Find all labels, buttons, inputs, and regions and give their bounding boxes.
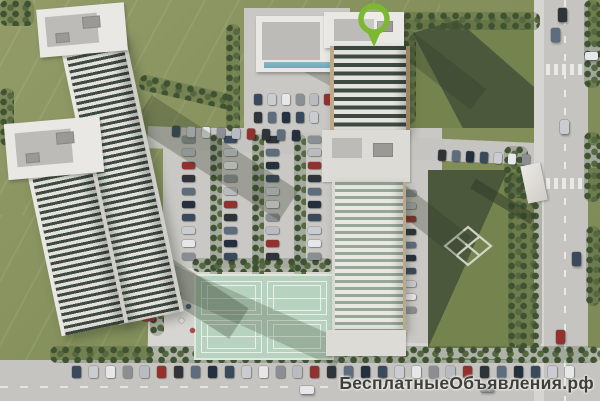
parked-car <box>224 214 237 221</box>
hedge-top <box>392 12 540 30</box>
park-north <box>402 20 534 128</box>
sports-courts <box>194 274 334 360</box>
court-markings <box>207 285 256 311</box>
parked-car <box>182 162 195 169</box>
parked-car <box>266 253 279 260</box>
parked-car <box>182 227 195 234</box>
parked-car <box>268 94 276 105</box>
location-pin-icon <box>352 0 396 50</box>
clubhouse-roof <box>262 22 320 60</box>
car-on-road <box>551 28 560 42</box>
parked-car <box>242 366 251 378</box>
parked-car <box>89 366 98 378</box>
parked-car <box>224 253 237 260</box>
trees-road-east-mid <box>584 132 600 202</box>
parked-car <box>308 201 321 208</box>
watermark-text: БесплатныеОбъявления.рф <box>339 373 594 394</box>
parked-car <box>277 129 285 140</box>
parked-car <box>232 128 240 139</box>
tennis-court-1 <box>201 281 262 315</box>
hedge-west-of-clubhouse <box>226 24 240 132</box>
playground-item <box>190 328 195 333</box>
parked-car <box>266 149 279 156</box>
parking-row-clubhouse-2 <box>254 112 318 123</box>
parked-car <box>225 366 234 378</box>
parked-car <box>308 253 321 260</box>
tower-a-roof <box>36 2 128 57</box>
trees-road-east-top <box>584 0 600 88</box>
parked-car <box>266 214 279 221</box>
parked-car <box>438 150 447 161</box>
rooftop-hvac <box>57 132 74 143</box>
parked-car <box>202 127 210 138</box>
parked-car <box>182 149 195 156</box>
parked-car <box>282 94 290 105</box>
tower-d-entrance <box>326 330 406 356</box>
parked-car <box>224 201 237 208</box>
parked-car <box>452 150 461 161</box>
parked-car <box>310 94 318 105</box>
parked-car <box>182 214 195 221</box>
car-on-road <box>558 8 567 22</box>
parked-car <box>308 227 321 234</box>
parked-car <box>508 153 517 164</box>
parked-car <box>466 151 475 162</box>
tower-c-facade <box>330 46 410 132</box>
car-on-road <box>300 386 314 394</box>
tennis-court-4 <box>267 320 328 354</box>
lap-pool <box>264 62 338 68</box>
parked-car <box>268 112 276 123</box>
park-diamond-paths <box>442 224 494 268</box>
court-markings <box>273 324 322 350</box>
parked-car <box>174 366 183 378</box>
parked-car <box>123 366 132 378</box>
tower-c-annex <box>322 130 410 182</box>
trees-top-left-corner <box>0 0 34 26</box>
rooftop-hvac <box>26 153 39 162</box>
aerial-render-residential-complex: БесплатныеОбъявления.рф <box>0 0 600 401</box>
parked-car <box>308 175 321 182</box>
parked-car <box>296 94 304 105</box>
tennis-court-3 <box>201 320 262 354</box>
rooftop-hvac <box>83 16 100 27</box>
parked-car <box>172 126 180 137</box>
parked-car <box>308 149 321 156</box>
parked-car <box>106 366 115 378</box>
court-markings <box>273 285 322 311</box>
parked-car <box>308 136 321 143</box>
hedge-above-courts <box>192 258 334 272</box>
parked-car <box>224 175 237 182</box>
parked-car <box>224 188 237 195</box>
parked-car <box>266 201 279 208</box>
parked-car <box>266 175 279 182</box>
parked-car <box>266 162 279 169</box>
parked-car <box>182 240 195 247</box>
parking-column-1 <box>182 136 195 260</box>
parking-row-clubhouse-1 <box>254 94 332 105</box>
playground-item <box>186 304 191 309</box>
parked-car <box>224 162 237 169</box>
car-on-road <box>585 52 598 60</box>
parked-car <box>224 149 237 156</box>
playground-item <box>179 318 184 323</box>
parked-car <box>182 188 195 195</box>
parked-car <box>208 366 217 378</box>
trees-road-east-lower <box>586 226 600 306</box>
parked-car <box>296 112 304 123</box>
parking-column-4 <box>308 136 321 260</box>
tower-b-roof <box>4 116 105 180</box>
parked-car <box>157 366 166 378</box>
parked-car <box>282 112 290 123</box>
parked-car <box>308 240 321 247</box>
rooftop-hvac <box>56 33 69 42</box>
parked-car <box>72 366 81 378</box>
tower-d-facade <box>332 182 406 330</box>
parked-car <box>140 366 149 378</box>
parked-car <box>276 366 285 378</box>
parked-car <box>308 214 321 221</box>
parked-car <box>494 153 503 164</box>
parked-car <box>266 188 279 195</box>
crosswalk-north <box>546 64 586 75</box>
parked-car <box>182 253 195 260</box>
parked-car <box>187 126 195 137</box>
parking-column-3 <box>266 136 279 260</box>
court-markings <box>207 324 256 350</box>
annex-roof <box>332 138 362 158</box>
tennis-court-2 <box>267 281 328 315</box>
parking-column-2 <box>224 136 237 260</box>
car-on-road <box>556 330 565 344</box>
rooftop-hvac <box>374 144 392 156</box>
parked-car <box>191 366 200 378</box>
car-on-road <box>560 120 569 134</box>
parked-car <box>310 112 318 123</box>
parked-car <box>308 162 321 169</box>
car-on-road <box>572 252 581 266</box>
parked-car <box>182 201 195 208</box>
parked-car <box>262 129 270 140</box>
parked-car <box>292 130 300 141</box>
parked-car <box>293 366 302 378</box>
parked-car <box>310 366 319 378</box>
parked-car <box>182 175 195 182</box>
parked-car <box>259 366 268 378</box>
parked-car <box>254 112 262 123</box>
parked-car <box>480 152 489 163</box>
parked-car <box>254 94 262 105</box>
tower-shadow-on-park-north <box>402 20 534 128</box>
parked-car <box>266 227 279 234</box>
parked-car <box>224 227 237 234</box>
parked-car <box>327 366 336 378</box>
parked-car <box>247 128 255 139</box>
parked-car <box>266 240 279 247</box>
parked-car <box>308 188 321 195</box>
parked-car <box>224 240 237 247</box>
parked-car <box>217 127 225 138</box>
crosswalk-mid <box>546 178 586 189</box>
